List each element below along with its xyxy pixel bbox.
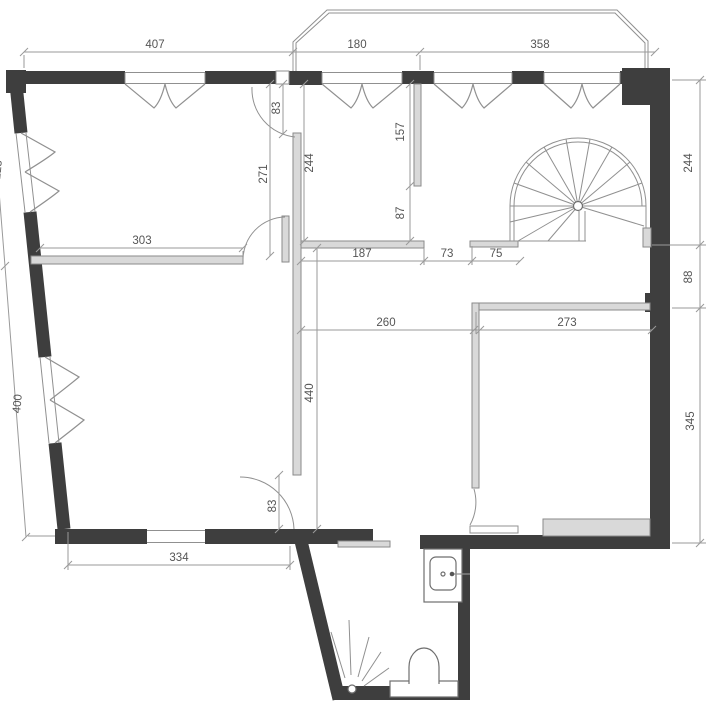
dim-label-407: 407 xyxy=(145,39,164,51)
wall-door-pocket xyxy=(276,71,289,84)
stair-treads xyxy=(510,139,646,241)
dim-label-88: 88 xyxy=(683,271,695,284)
hall-partition-187 xyxy=(301,241,424,248)
dimension-labels: 407 180 358 223 400 83 271 244 157 87 30… xyxy=(0,39,697,564)
door-bedroom xyxy=(470,489,518,533)
floor-plan-page: 407 180 358 223 400 83 271 244 157 87 30… xyxy=(0,0,720,720)
dim-label-334: 334 xyxy=(169,552,189,564)
dim-label-223: 223 xyxy=(0,160,5,180)
hall-partition-75 xyxy=(470,241,518,247)
bathroom-fixtures xyxy=(331,549,470,697)
tap-handle xyxy=(450,572,455,577)
hall-partition-157 xyxy=(414,84,421,186)
left-wall xyxy=(16,84,64,529)
bedroom-partition-top xyxy=(472,303,650,310)
dim-label-73: 73 xyxy=(441,248,454,260)
dim-label-303: 303 xyxy=(132,235,151,247)
dim-label-187: 187 xyxy=(352,248,371,260)
dim-label-273: 273 xyxy=(557,317,576,329)
interior-partitions xyxy=(31,84,651,536)
toilet xyxy=(390,648,458,697)
spiral-staircase xyxy=(510,138,646,241)
dim-label-83-bottom: 83 xyxy=(267,500,279,513)
top-wall xyxy=(8,71,670,85)
sliding-door-bathroom xyxy=(338,541,390,547)
dim-label-345: 345 xyxy=(685,411,697,430)
dim-label-75: 75 xyxy=(490,248,503,260)
dim-label-244-left: 244 xyxy=(304,153,316,173)
dim-label-358: 358 xyxy=(530,39,549,51)
dim-label-271: 271 xyxy=(258,164,270,183)
dim-label-180: 180 xyxy=(347,39,366,51)
dim-label-244-right: 244 xyxy=(683,153,695,173)
left-wall-windows xyxy=(16,133,84,443)
dim-label-260: 260 xyxy=(376,317,395,329)
stair-wall-stub xyxy=(643,228,651,247)
stair-center-post xyxy=(574,202,583,211)
terrace-outline xyxy=(293,10,648,71)
floor-plan-canvas: 407 180 358 223 400 83 271 244 157 87 30… xyxy=(0,0,720,720)
dim-label-83-top: 83 xyxy=(271,102,283,115)
dim-label-440: 440 xyxy=(304,383,316,402)
dim-label-87: 87 xyxy=(395,207,407,220)
left-room-partition-303 xyxy=(31,256,243,264)
dim-label-157: 157 xyxy=(395,122,407,141)
door-left-room xyxy=(243,216,289,262)
central-partition xyxy=(293,133,301,475)
low-cabinet xyxy=(543,519,650,536)
window-casement-symbols xyxy=(125,84,620,108)
dim-label-400: 400 xyxy=(11,394,25,414)
